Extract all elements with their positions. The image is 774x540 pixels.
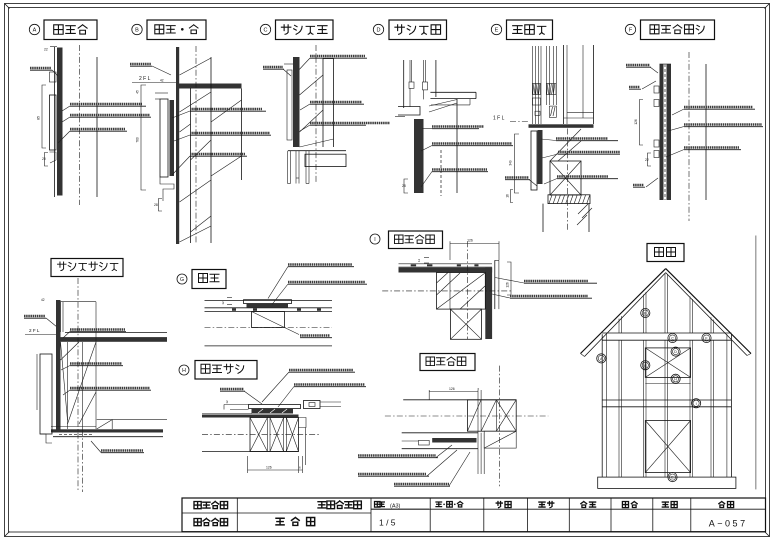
svg-text:B: B <box>644 312 647 316</box>
svg-text:16: 16 <box>506 194 510 198</box>
svg-text:F: F <box>629 28 633 34</box>
svg-text:B: B <box>135 28 139 34</box>
svg-text:G: G <box>644 364 647 368</box>
svg-text:12: 12 <box>417 259 421 263</box>
svg-text:D: D <box>377 28 381 34</box>
svg-text:I: I <box>696 402 697 406</box>
svg-text:6: 6 <box>299 466 301 470</box>
svg-text:2 F L: 2 F L <box>139 76 151 82</box>
svg-text:A: A <box>600 357 603 361</box>
svg-text:H: H <box>674 377 677 381</box>
svg-text:126: 126 <box>467 239 473 243</box>
svg-text:126: 126 <box>506 282 510 288</box>
svg-text:6: 6 <box>478 387 480 391</box>
svg-text:22: 22 <box>645 158 649 162</box>
svg-text:H: H <box>182 368 186 374</box>
svg-text:12: 12 <box>221 301 225 305</box>
svg-text:A: A <box>33 28 37 34</box>
svg-text:20: 20 <box>42 157 46 161</box>
svg-text:C: C <box>264 28 268 34</box>
svg-text:I: I <box>374 237 375 243</box>
svg-text:E: E <box>671 476 674 480</box>
svg-text:42: 42 <box>41 298 45 302</box>
svg-text:1 F L: 1 F L <box>493 116 505 122</box>
svg-text:12: 12 <box>225 400 229 404</box>
svg-text:28: 28 <box>154 203 158 207</box>
svg-text:42: 42 <box>160 79 164 83</box>
svg-text:D: D <box>674 350 677 354</box>
svg-text:2 F L: 2 F L <box>29 328 40 333</box>
svg-text:C: C <box>671 337 674 341</box>
svg-text:126: 126 <box>449 387 455 391</box>
svg-text:349: 349 <box>509 160 513 166</box>
svg-text:1 / 5: 1 / 5 <box>379 518 396 528</box>
svg-text:22: 22 <box>44 48 48 52</box>
svg-text:G: G <box>180 277 184 283</box>
svg-text:126: 126 <box>266 466 272 470</box>
svg-text:45: 45 <box>136 90 140 94</box>
svg-text:126: 126 <box>634 119 638 125</box>
svg-text:85: 85 <box>37 116 41 120</box>
svg-text:E: E <box>495 28 499 34</box>
svg-text:A−057: A−057 <box>709 519 748 529</box>
svg-text:760: 760 <box>136 137 140 143</box>
svg-text:(A3): (A3) <box>390 504 401 510</box>
